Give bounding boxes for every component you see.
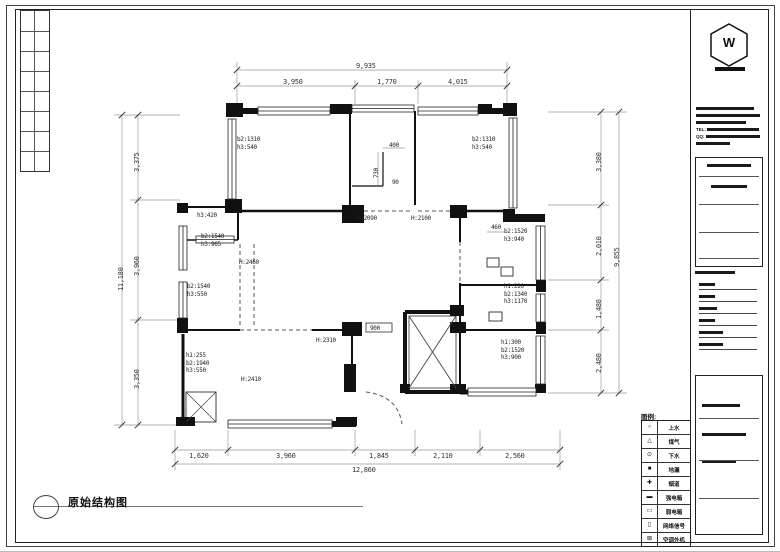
dimension-lines [114,62,627,470]
illegible-text [702,404,740,407]
legend-symbol: ■ [642,463,658,476]
project-box [695,157,763,267]
dimension-ticks [119,67,622,467]
dimension-text: 2,480 [595,353,603,373]
dimension-text: 1,845 [369,452,389,460]
signature-fields [695,271,761,367]
logo-caption-bar [715,67,745,71]
legend-symbol: ▬ [642,491,658,504]
legend-row: ▯网络信号 [642,519,690,533]
illegible-text [699,331,723,334]
dimension-text: 2,560 [505,452,525,460]
dimension-text: 9,935 [356,62,376,70]
illegible-text [699,307,717,310]
illegible-text [699,295,715,298]
legend-name: 烟道 [658,480,690,488]
dimension-text: 3,350 [133,369,141,389]
plan-label: h1:220 b2:1340 h3:1170 [504,283,527,306]
illegible-text [696,114,760,117]
dimension-text: 1,480 [595,299,603,319]
dimension-text: 3,950 [283,78,303,86]
plan-label: H:2090 [357,215,377,223]
legend-row: ▭弱电箱 [642,505,690,519]
legend-symbol: ▭ [642,505,658,518]
plan-label: 90 [392,179,399,187]
illegible-text [695,271,735,274]
plan-label: h1:300 b2:1520 h3:900 [501,339,524,362]
title-block: W TEL: QQ: [690,9,768,541]
legend-row: ○上水 [642,421,690,435]
cad-sheet: b2:1310 h3:540b2:1310 h3:540h3:420b2:154… [0,0,780,552]
dimension-text: 3,375 [133,152,141,172]
plan-label: 730 [373,168,381,178]
legend-name: 上水 [658,424,690,432]
legend-row: ⊙下水 [642,449,690,463]
dimension-text: 3,960 [276,452,296,460]
plan-label: b2:1540 h3:965 [201,233,224,248]
qq-label: QQ: [696,134,705,139]
illegible-text [711,185,747,188]
plan-label: H:2100 [411,215,431,223]
legend-name: 下水 [658,452,690,460]
title-marker-circle [33,495,59,519]
plan-label: 900 [370,325,380,333]
plan-label: b2:1310 h3:540 [237,136,260,151]
dimension-text: 3,380 [595,152,603,172]
illegible-text [696,142,730,145]
dimension-text: 1,770 [377,78,397,86]
drawing-title: 原始结构图 [68,494,128,510]
legend-symbol: ○ [642,421,658,434]
plan-label: H:2410 [241,376,261,384]
plan-label: h1:255 b2:1940 h3:550 [186,352,209,375]
illegible-text [699,283,715,286]
illegible-text [706,135,760,138]
dimension-text: 1,620 [189,452,209,460]
dimension-text: 11,180 [117,268,125,292]
company-info: TEL: QQ: [696,105,762,147]
illegible-text [699,319,715,322]
legend-table: ○上水△煤气⊙下水■地漏✚烟道▬强电箱▭弱电箱▯网络信号⊠空调外机 [641,420,691,547]
legend-symbol: ⊠ [642,533,658,546]
plan-label: h3:420 [197,212,217,220]
dimension-text: 2,110 [433,452,453,460]
legend-name: 弱电箱 [658,508,690,516]
dimension-text: 3,960 [133,256,141,276]
legend-row: ■地漏 [642,463,690,477]
illegible-text [702,433,746,436]
dimension-text: 4,015 [448,78,468,86]
windows [179,105,545,428]
plan-label: 400 [389,142,399,150]
illegible-text [699,343,723,346]
legend-name: 地漏 [658,466,690,474]
dimension-text: 9,855 [613,247,621,267]
dimension-text: 2,010 [595,236,603,256]
plan-label: b2:1520 h3:940 [504,228,527,243]
legend-name: 强电箱 [658,494,690,502]
plan-label: H:2310 [316,337,336,345]
legend-row: ✚烟道 [642,477,690,491]
dimension-text: 12,860 [352,466,376,474]
company-logo: W [709,23,749,67]
plan-label: b2:1540 h3:550 [187,283,210,298]
notes-box [695,375,763,535]
illegible-text [696,107,754,110]
legend-symbol: ✚ [642,477,658,490]
legend-row: ⊠空调外机 [642,533,690,546]
legend-name: 空调外机 [658,536,690,544]
legend-symbol: △ [642,435,658,448]
legend-name: 煤气 [658,438,690,446]
legend-name: 网络信号 [658,522,690,530]
plan-label: H:2460 [239,259,259,267]
legend-symbol: ⊙ [642,449,658,462]
illegible-text [696,121,746,124]
logo-glyph: W [723,35,736,50]
plan-label: 460 [491,224,501,232]
legend-row: ▬强电箱 [642,491,690,505]
plan-label: b2:1310 h3:540 [472,136,495,151]
legend-row: △煤气 [642,435,690,449]
illegible-text [707,128,759,131]
illegible-text [707,164,751,167]
legend-symbol: ▯ [642,519,658,532]
tel-label: TEL: [696,127,706,132]
